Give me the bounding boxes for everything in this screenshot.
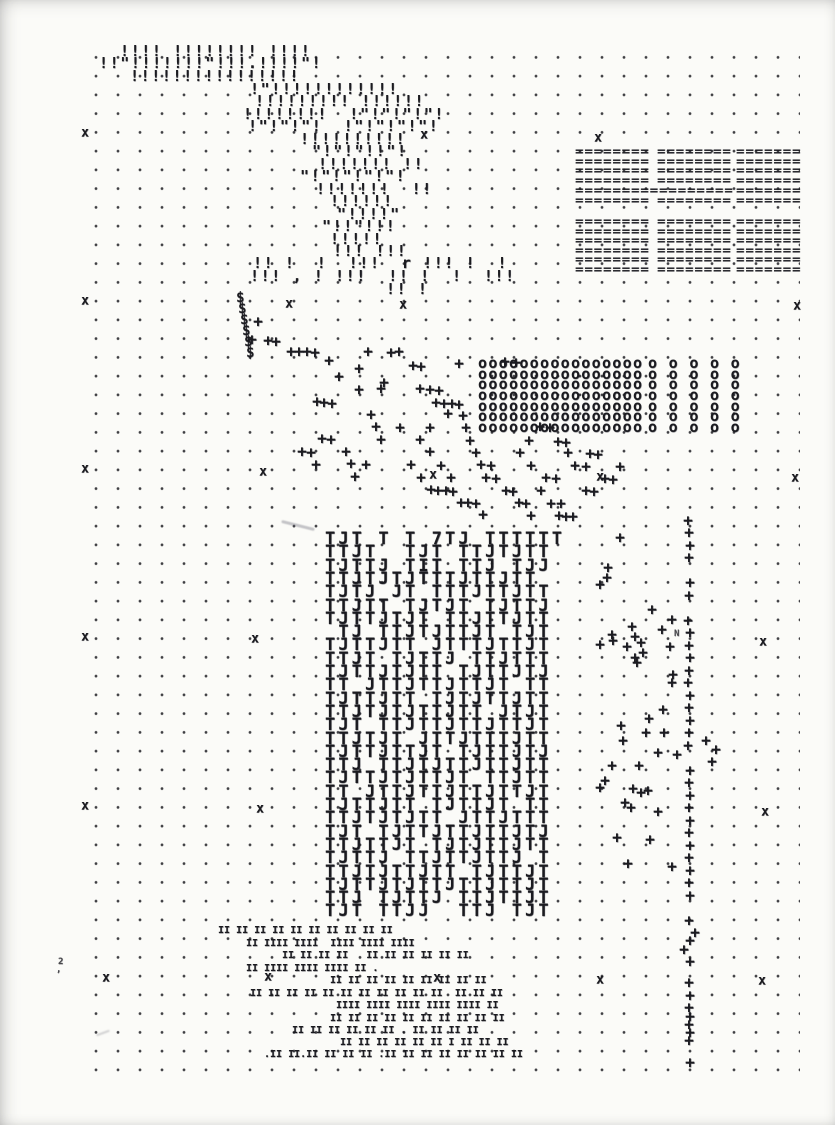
circle-line: o o o o o <box>648 420 741 435</box>
plus-symbol: + <box>612 830 622 846</box>
bar-line: II IIII IIII IIII IIII IIII <box>246 939 415 949</box>
scanned-printer-page: !!!! !!!!!!!! !!!!!!"!!!!!!!"!!!.!!!!"!!… <box>0 0 835 1125</box>
plus-symbol: + <box>363 344 373 360</box>
plus-symbol: + <box>657 622 667 638</box>
plus-symbol: + <box>415 381 425 397</box>
plus-symbol: + <box>491 471 501 487</box>
plus-symbol: + <box>334 369 344 385</box>
plus-symbol: + <box>623 856 633 872</box>
registration-x-mark: x <box>259 466 267 479</box>
stray-mark: , <box>56 966 61 975</box>
plus-symbol: + <box>536 483 546 499</box>
registration-x-mark: x <box>81 295 89 308</box>
equals-line: ======== <box>657 175 732 186</box>
plus-symbol: + <box>416 359 426 375</box>
plus-symbol: + <box>311 457 321 473</box>
plus-symbol: + <box>535 419 545 435</box>
plus-symbol: + <box>685 954 695 970</box>
registration-x-mark: x <box>251 633 259 646</box>
registration-x-mark: x <box>758 975 766 988</box>
exclamation-line: !! ! <box>386 282 429 297</box>
equals-line: ======== <box>657 264 732 275</box>
plus-symbol: + <box>425 444 435 460</box>
printed-characters-layer: !!!! !!!!!!!! !!!!!!"!!!!!!!"!!!.!!!!"!!… <box>0 0 835 1125</box>
equals-line: ======= <box>736 264 801 275</box>
plus-symbol: + <box>684 1033 694 1049</box>
plus-symbol: + <box>515 445 525 461</box>
plus-symbol: + <box>632 655 642 671</box>
plus-symbol: + <box>310 345 320 361</box>
plus-symbol: + <box>593 447 603 463</box>
plus-symbol: + <box>354 361 364 377</box>
plus-symbol: + <box>376 432 386 448</box>
plus-symbol: + <box>570 458 580 474</box>
registration-x-mark: x <box>761 806 769 819</box>
registration-x-mark: x <box>399 299 407 312</box>
plus-symbol: + <box>672 747 682 763</box>
equals-line: ======= <box>736 195 801 206</box>
bar-line: II II II II II II II II II II <box>282 951 469 961</box>
plus-symbol: + <box>626 800 636 816</box>
registration-x-mark: x <box>793 300 801 313</box>
plus-symbol: + <box>253 314 263 330</box>
plus-symbol: + <box>500 354 510 370</box>
plus-symbol: + <box>667 675 677 691</box>
plus-symbol: + <box>361 457 371 473</box>
plus-symbol: + <box>454 356 464 372</box>
plus-symbol: + <box>526 508 536 524</box>
plus-symbol: + <box>634 758 644 774</box>
plus-symbol: + <box>685 888 695 904</box>
plus-symbol: + <box>589 484 599 500</box>
bar-line: II II II II II II I II II II <box>340 1038 509 1048</box>
plus-symbol: + <box>395 420 405 436</box>
plus-symbol: + <box>425 420 435 436</box>
plus-symbol: + <box>641 725 651 741</box>
plus-symbol: + <box>415 432 425 448</box>
plus-symbol: + <box>354 382 364 398</box>
plus-symbol: + <box>511 355 521 371</box>
plus-symbol: + <box>524 433 534 449</box>
bar-line: II II II II II II . II II II II <box>292 1026 479 1036</box>
stray-mark: N <box>674 630 679 639</box>
bar-line: II II II II II II II II II II II II II I… <box>250 989 503 999</box>
plus-symbol: + <box>658 702 668 718</box>
registration-x-mark: x <box>81 463 89 476</box>
registration-x-mark: x <box>81 800 89 813</box>
bar-line: IIII IIII IIII IIII IIII II <box>336 1001 499 1011</box>
equals-line: ======== <box>575 195 650 206</box>
plus-symbol: + <box>653 804 663 820</box>
registration-x-mark: x <box>759 636 767 649</box>
bar-line: II II II II II II II II II <box>330 976 487 986</box>
registration-x-mark: x <box>256 803 264 816</box>
registration-x-mark: x <box>596 471 604 484</box>
registration-x-mark: x <box>102 972 110 985</box>
plus-symbol: + <box>595 577 605 593</box>
plus-symbol: + <box>665 639 675 655</box>
plus-symbol: + <box>618 733 628 749</box>
plus-symbol: + <box>326 432 336 448</box>
plus-symbol: + <box>406 457 416 473</box>
registration-x-mark: x <box>791 472 799 485</box>
equals-line: ======== <box>657 195 732 206</box>
plus-symbol: + <box>667 612 677 628</box>
plus-symbol: + <box>478 507 488 523</box>
plus-symbol: + <box>701 733 711 749</box>
equals-line: ======== <box>575 264 650 275</box>
plus-symbol: + <box>327 396 337 412</box>
plus-symbol: + <box>685 1055 695 1071</box>
plus-symbol: + <box>647 602 657 618</box>
plus-symbol: + <box>568 509 578 525</box>
plus-symbol: + <box>653 745 663 761</box>
plus-symbol: + <box>350 469 360 485</box>
registration-x-mark: x <box>264 971 272 984</box>
plus-symbol: + <box>443 406 453 422</box>
exclamation-line: !!! , ! !!! !! ! ! !!! <box>250 269 516 284</box>
plus-symbol: + <box>324 353 334 369</box>
registration-x-mark: x <box>81 127 89 140</box>
plus-symbol: + <box>394 344 404 360</box>
registration-x-mark: x <box>594 132 602 145</box>
registration-x-mark: x <box>420 129 428 142</box>
bar-line: II II II II II II II II II II <box>330 1014 505 1024</box>
registration-x-mark: x <box>433 972 441 985</box>
plus-symbol: + <box>608 472 618 488</box>
plus-symbol: + <box>684 550 694 566</box>
plus-symbol: + <box>659 725 669 741</box>
registration-x-mark: x <box>596 974 604 987</box>
plus-symbol: + <box>436 458 446 474</box>
plus-symbol: + <box>643 783 653 799</box>
plus-symbol: + <box>667 859 677 875</box>
plus-symbol: + <box>247 332 257 348</box>
registration-x-mark: x <box>429 469 437 482</box>
plus-symbol: + <box>416 470 426 486</box>
plus-symbol: + <box>615 530 625 546</box>
registration-x-mark: x <box>81 631 89 644</box>
t-block-line: TJT TTJJ TTJ TJT <box>325 903 552 920</box>
bar-line: II II II II II II II II II II <box>218 926 393 936</box>
plus-symbol: + <box>645 832 655 848</box>
bar-line: .II II.II II II II .II II II II II II II… <box>264 1050 523 1060</box>
plus-symbol: + <box>581 459 591 475</box>
plus-symbol: + <box>595 780 605 796</box>
plus-symbol: + <box>481 470 491 486</box>
plus-symbol: + <box>595 637 605 653</box>
plus-symbol: + <box>271 334 281 350</box>
plus-symbol: + <box>551 471 561 487</box>
plus-symbol: + <box>526 458 536 474</box>
plus-symbol: + <box>707 754 717 770</box>
plus-symbol: + <box>376 381 386 397</box>
plus-symbol: + <box>683 738 693 754</box>
plus-symbol: + <box>684 588 694 604</box>
registration-x-mark: x <box>285 298 293 311</box>
plus-symbol: + <box>608 633 618 649</box>
